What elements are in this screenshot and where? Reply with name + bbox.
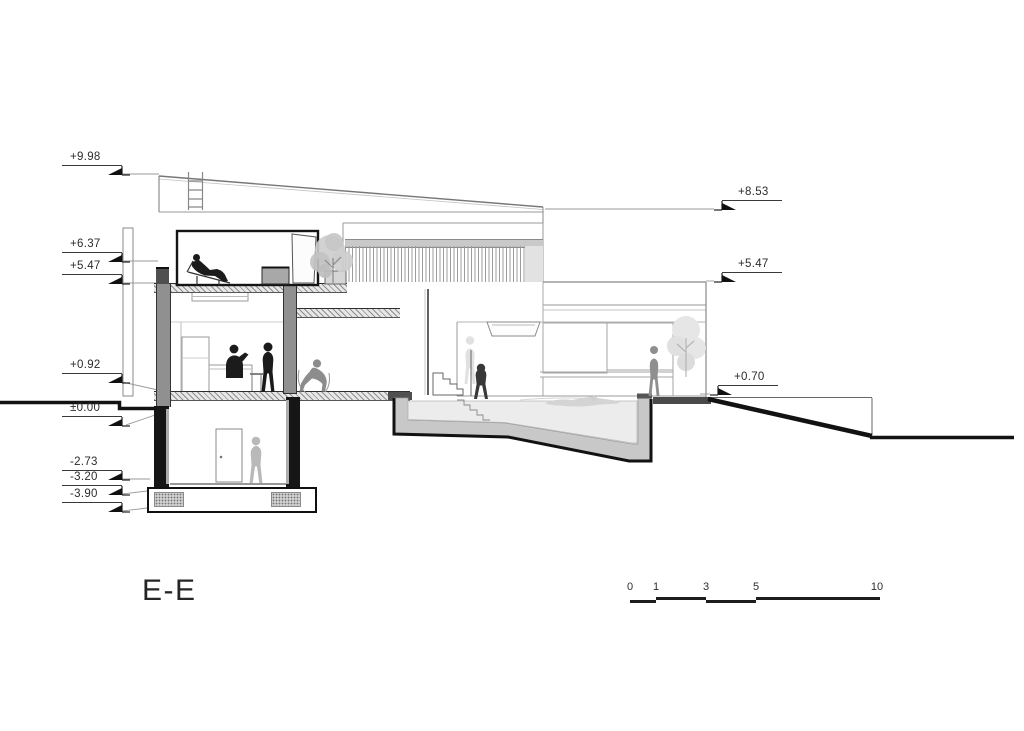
marker-line bbox=[62, 165, 122, 166]
elevation-marker-left-6: -3.20 bbox=[62, 472, 122, 486]
scale-tick-label: 1 bbox=[653, 581, 659, 593]
elevation-marker-left-7: -3.90 bbox=[62, 489, 122, 503]
level-flag-icon bbox=[100, 374, 130, 384]
elevation-value: +8.53 bbox=[722, 187, 782, 198]
marker-line bbox=[62, 502, 122, 503]
person-standing-icon bbox=[262, 343, 275, 393]
scale-segment bbox=[756, 597, 880, 600]
person-kitchen-icon bbox=[226, 345, 249, 378]
marker-line bbox=[62, 252, 122, 253]
marker-line bbox=[722, 272, 782, 273]
scale-segment bbox=[656, 597, 706, 600]
terrace-parapet bbox=[262, 267, 289, 284]
level-flag-icon bbox=[710, 386, 740, 396]
stairs-group bbox=[433, 350, 471, 396]
section-drawing-canvas: +9.98 +6.37 +5.47 bbox=[0, 0, 1024, 731]
scale-tick-label: 0 bbox=[627, 581, 633, 593]
marker-line bbox=[62, 373, 122, 374]
elevation-marker-left-5: -2.73 bbox=[62, 457, 122, 471]
scale-tick-label: 5 bbox=[753, 581, 759, 593]
person-sitting-icon bbox=[298, 359, 329, 392]
level-flag-icon bbox=[100, 417, 130, 427]
pool-group bbox=[394, 394, 652, 462]
terrain-right bbox=[708, 399, 1014, 438]
person-basement-icon bbox=[250, 437, 263, 484]
glass-edge bbox=[425, 289, 428, 395]
elevation-value: ±0.00 bbox=[62, 403, 122, 414]
scale-bar: 0 1 3 5 10 bbox=[628, 581, 884, 605]
marker-line bbox=[62, 416, 122, 417]
level-flag-icon bbox=[100, 166, 130, 176]
marker-line bbox=[722, 200, 782, 201]
scale-tick-label: 3 bbox=[703, 581, 709, 593]
scale-segment bbox=[706, 600, 756, 603]
section-title: E-E bbox=[142, 574, 197, 608]
elevation-marker-right-0: +8.53 bbox=[722, 187, 782, 201]
level-flag-icon bbox=[100, 503, 130, 513]
elevation-marker-left-2: +5.47 bbox=[62, 261, 122, 275]
elevation-marker-right-1: +5.47 bbox=[722, 259, 782, 273]
elevation-value: +9.98 bbox=[62, 152, 122, 163]
elevation-value: +5.47 bbox=[62, 261, 122, 272]
marker-line bbox=[62, 485, 122, 486]
person-walking-icon bbox=[474, 364, 488, 399]
scale-segment bbox=[630, 600, 656, 603]
elevation-value: +5.47 bbox=[722, 259, 782, 270]
marker-line bbox=[62, 274, 122, 275]
elevation-marker-left-4: ±0.00 bbox=[62, 403, 122, 417]
elevation-marker-right-2: +0.70 bbox=[718, 372, 778, 386]
level-flag-icon bbox=[714, 273, 744, 283]
elevation-value: -2.73 bbox=[62, 457, 122, 468]
elevation-marker-left-1: +6.37 bbox=[62, 239, 122, 253]
elevation-value: +0.92 bbox=[62, 360, 122, 371]
elevation-value: -3.90 bbox=[62, 489, 122, 500]
elevation-value: +6.37 bbox=[62, 239, 122, 250]
person-standing-right-icon bbox=[649, 346, 660, 396]
level-flag-icon bbox=[100, 275, 130, 285]
elevation-marker-left-0: +9.98 bbox=[62, 152, 122, 166]
elevation-marker-left-3: +0.92 bbox=[62, 360, 122, 374]
section-linework bbox=[0, 0, 1024, 731]
elevation-value: -3.20 bbox=[62, 472, 122, 483]
level-flag-icon bbox=[714, 201, 744, 211]
scale-tick-label: 10 bbox=[871, 581, 883, 593]
elevation-value: +0.70 bbox=[718, 372, 778, 383]
marker-line bbox=[718, 385, 778, 386]
